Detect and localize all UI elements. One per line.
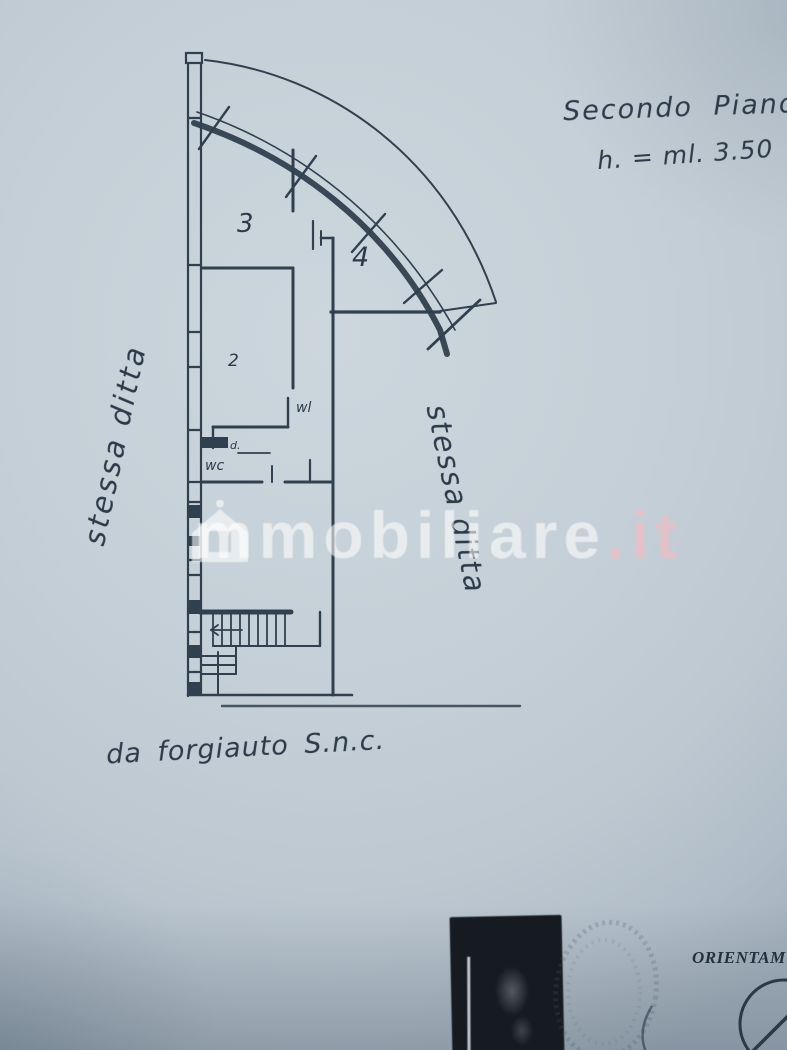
compass-needle — [746, 990, 787, 1050]
orientation-label: ORIENTAM — [692, 948, 786, 968]
stamps-and-compass — [0, 0, 787, 1050]
floorplan-photo: 3 2 4 wl d. wc Secondo Piano h. = ml. 3.… — [0, 0, 787, 1050]
faded-round-stamp — [547, 916, 665, 1050]
